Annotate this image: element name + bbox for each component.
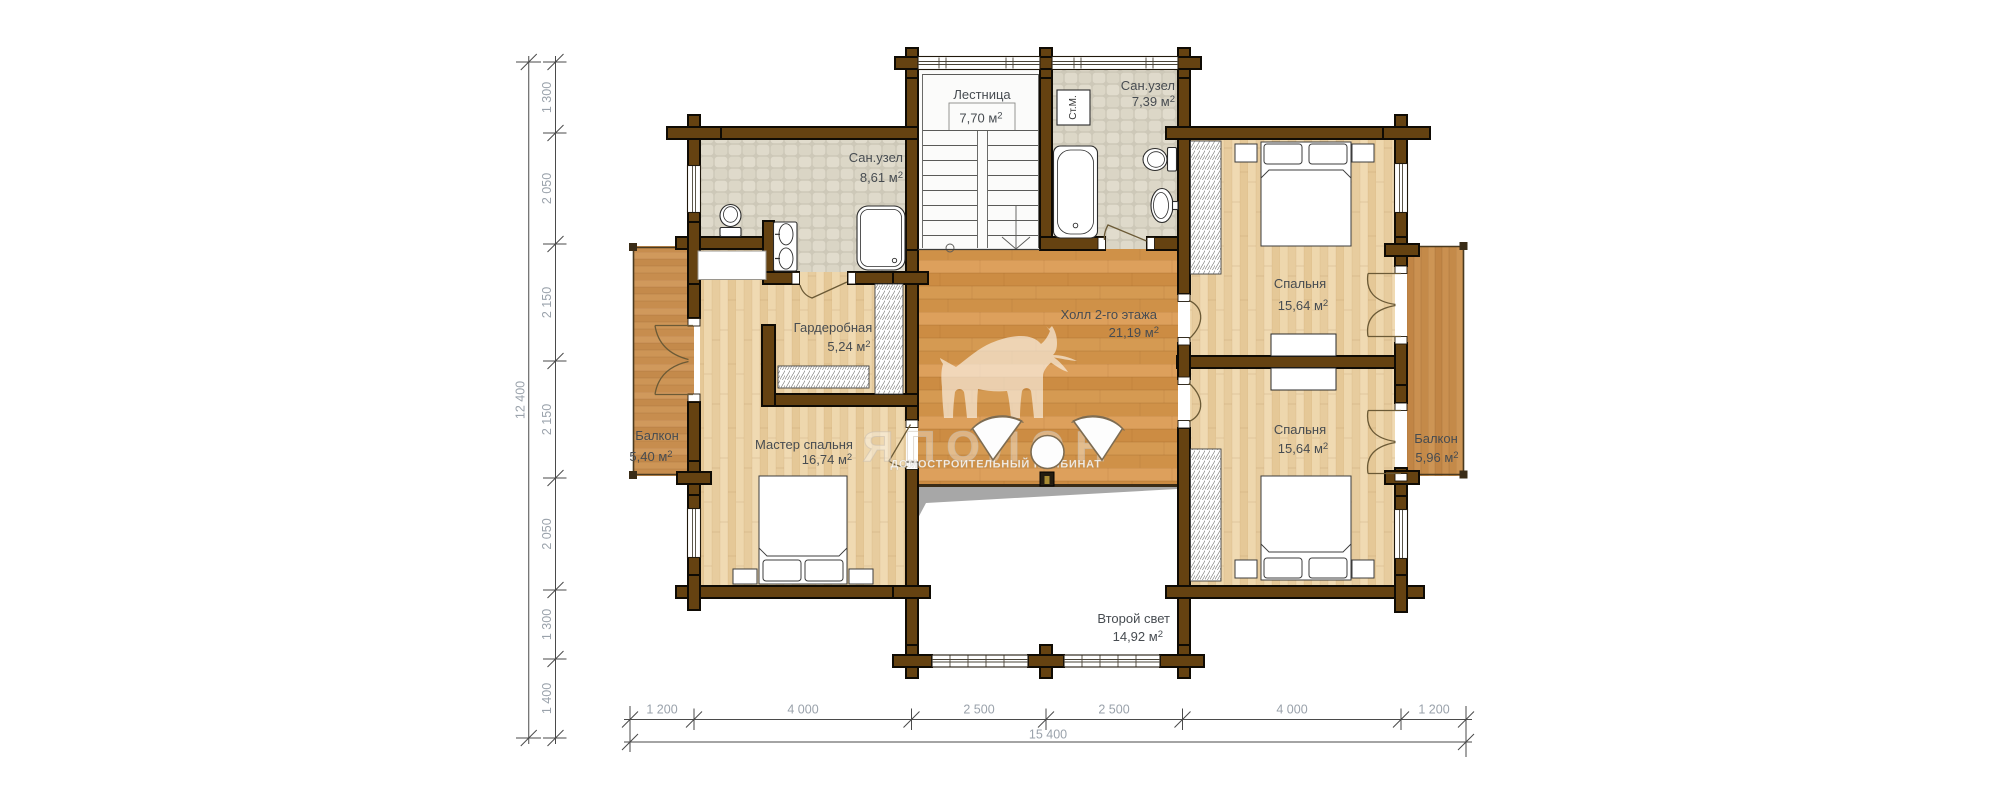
svg-text:5,96 м2: 5,96 м2 bbox=[1415, 450, 1458, 465]
svg-text:2 050: 2 050 bbox=[540, 173, 554, 204]
svg-text:Холл 2-го этажа: Холл 2-го этажа bbox=[1061, 307, 1158, 322]
svg-text:5,24 м2: 5,24 м2 bbox=[827, 339, 870, 354]
svg-text:Спальня: Спальня bbox=[1274, 422, 1326, 437]
svg-text:ДОМОСТРОИТЕЛЬНЫЙ КОМБИНАТ: ДОМОСТРОИТЕЛЬНЫЙ КОМБИНАТ bbox=[890, 458, 1101, 471]
svg-text:1 200: 1 200 bbox=[646, 703, 677, 717]
svg-text:7,39 м2: 7,39 м2 bbox=[1132, 94, 1175, 109]
svg-text:8,61 м2: 8,61 м2 bbox=[860, 170, 903, 185]
svg-text:Лестница: Лестница bbox=[953, 87, 1011, 102]
svg-text:5,40 м2: 5,40 м2 bbox=[629, 449, 672, 464]
svg-text:Балкон: Балкон bbox=[635, 428, 679, 443]
svg-text:21,19 м2: 21,19 м2 bbox=[1109, 325, 1159, 340]
svg-text:4 000: 4 000 bbox=[1276, 703, 1307, 717]
svg-text:1 200: 1 200 bbox=[1418, 703, 1449, 717]
svg-text:2 500: 2 500 bbox=[963, 703, 994, 717]
svg-text:Спальня: Спальня bbox=[1274, 276, 1326, 291]
svg-text:Мастер спальня: Мастер спальня bbox=[755, 437, 853, 452]
svg-text:4 000: 4 000 bbox=[787, 703, 818, 717]
svg-text:1 300: 1 300 bbox=[540, 82, 554, 113]
svg-text:Балкон: Балкон bbox=[1414, 431, 1458, 446]
svg-text:2 150: 2 150 bbox=[540, 404, 554, 435]
svg-text:1 300: 1 300 bbox=[540, 609, 554, 640]
svg-text:15,64 м2: 15,64 м2 bbox=[1278, 298, 1328, 313]
svg-text:Сан.узел: Сан.узел bbox=[849, 150, 903, 165]
svg-text:2 050: 2 050 bbox=[540, 518, 554, 549]
svg-text:Ст.М.: Ст.М. bbox=[1068, 95, 1079, 120]
svg-text:1 400: 1 400 bbox=[540, 683, 554, 714]
svg-text:15 400: 15 400 bbox=[1029, 728, 1067, 742]
svg-text:15,64 м2: 15,64 м2 bbox=[1278, 441, 1328, 456]
svg-text:7,70 м2: 7,70 м2 bbox=[959, 111, 1002, 126]
svg-text:Сан.узел: Сан.узел bbox=[1121, 78, 1175, 93]
svg-text:14,92 м2: 14,92 м2 bbox=[1113, 629, 1163, 644]
svg-text:2 150: 2 150 bbox=[540, 287, 554, 318]
svg-text:16,74 м2: 16,74 м2 bbox=[802, 452, 852, 467]
svg-text:12 400: 12 400 bbox=[514, 381, 528, 419]
svg-text:Гардеробная: Гардеробная bbox=[794, 320, 873, 335]
svg-text:2 500: 2 500 bbox=[1098, 703, 1129, 717]
svg-text:Второй свет: Второй свет bbox=[1097, 611, 1170, 626]
